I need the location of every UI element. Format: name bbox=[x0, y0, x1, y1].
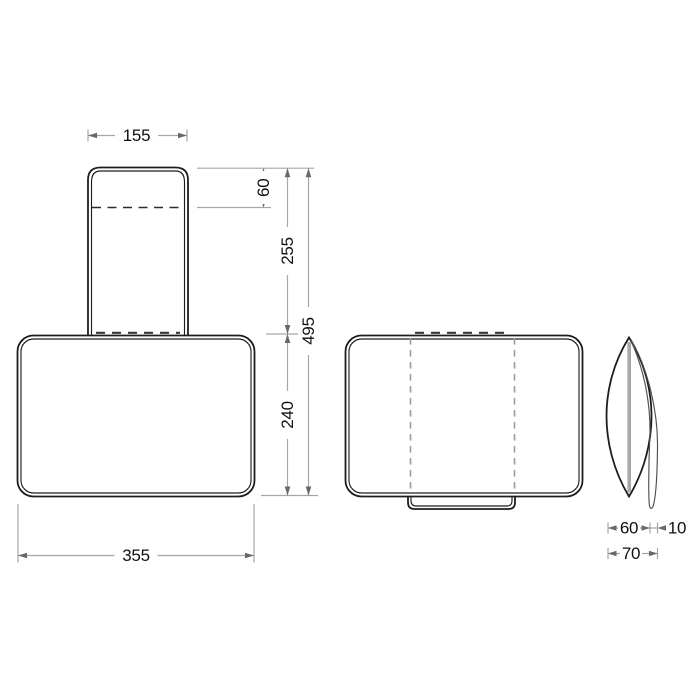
dimension-strap-offset: 10 bbox=[650, 519, 686, 538]
dim-label-strap-exposed: 60 bbox=[254, 179, 273, 197]
arrow-down-icon bbox=[306, 487, 312, 496]
technical-drawing-canvas: 155 60 255 240 495 bbox=[0, 0, 700, 700]
arrow-left-icon bbox=[608, 551, 617, 556]
front-view bbox=[18, 168, 255, 497]
dimension-strap-exposed: 60 bbox=[254, 168, 273, 207]
arrow-left-icon bbox=[608, 525, 617, 530]
side-strap-loop bbox=[631, 339, 658, 509]
dim-label-body-width: 355 bbox=[122, 546, 149, 565]
dim-label-strap-length: 255 bbox=[278, 237, 297, 264]
front-strap-inner-outline bbox=[92, 171, 185, 336]
arrow-down-icon bbox=[285, 325, 291, 334]
arrow-up-icon bbox=[306, 168, 312, 177]
dimension-body-depth: 60 bbox=[608, 519, 650, 538]
dimension-overall-height: 495 bbox=[299, 168, 318, 495]
dimension-body-width: 355 bbox=[18, 504, 254, 565]
arrow-down-icon bbox=[285, 487, 291, 496]
back-body-outer-outline bbox=[346, 336, 583, 497]
dimension-strap-width: 155 bbox=[88, 126, 187, 145]
dim-label-body-depth: 60 bbox=[620, 519, 638, 538]
dimension-drawing: 155 60 255 240 495 bbox=[0, 0, 700, 700]
back-view bbox=[346, 333, 583, 509]
dim-label-body-height: 240 bbox=[278, 401, 297, 428]
dimension-body-height: 240 bbox=[278, 334, 297, 496]
back-strap-end-inner bbox=[411, 496, 512, 506]
dimension-strap-length: 255 bbox=[278, 168, 297, 334]
arrow-up-icon bbox=[285, 168, 291, 177]
dim-label-overall-depth: 70 bbox=[622, 544, 640, 563]
back-body-inner-outline bbox=[349, 339, 579, 493]
dim-label-strap-width: 155 bbox=[123, 126, 150, 145]
side-view bbox=[607, 338, 658, 509]
dim-label-overall-height: 495 bbox=[299, 317, 318, 344]
arrow-right-icon bbox=[649, 551, 658, 556]
arrow-right-icon bbox=[245, 553, 254, 559]
front-body-inner-outline bbox=[21, 339, 251, 493]
back-strap-end-outer bbox=[408, 496, 515, 509]
arrow-up-icon bbox=[285, 334, 291, 343]
arrow-left-icon bbox=[658, 525, 667, 530]
arrow-left-icon bbox=[88, 133, 97, 139]
arrow-right-icon bbox=[178, 133, 187, 139]
arrow-left-icon bbox=[18, 553, 27, 559]
dim-label-strap-offset: 10 bbox=[668, 519, 686, 538]
arrow-right-icon bbox=[642, 525, 651, 530]
front-body-outer-outline bbox=[18, 336, 255, 497]
front-strap-outer-outline bbox=[88, 168, 188, 337]
dimension-overall-depth: 70 bbox=[608, 544, 658, 563]
